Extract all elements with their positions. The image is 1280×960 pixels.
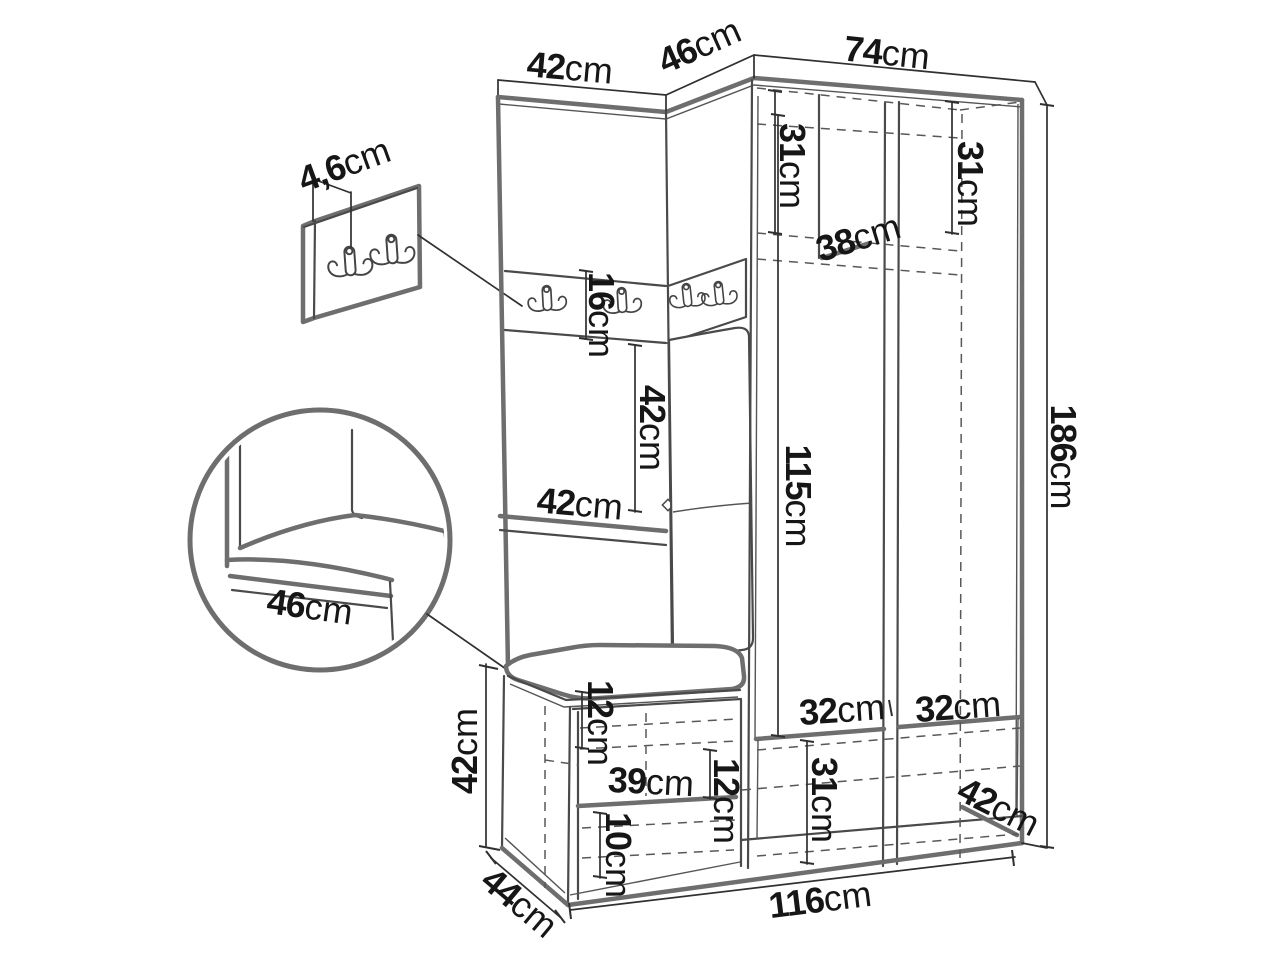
dim-line-total-height: [1022, 105, 1047, 848]
dim-label-top-left-width: 42cm: [525, 43, 614, 91]
dim-label-door-height: 115cm: [779, 444, 820, 547]
dim-label-detail-seat-depth: 46cm: [265, 580, 356, 633]
dim-label-top-right-width: 74cm: [842, 27, 932, 77]
detail-front-corner: [390, 582, 393, 642]
middle-shelf-underline: [500, 530, 666, 545]
cabinet-left-edge: [498, 97, 508, 668]
dim-label-hook-strip-height: 16cm: [582, 272, 623, 358]
dim-label-upper-shelf-depth: 38cm: [811, 205, 905, 269]
dim-label-upper-left-shelf-height: 31cm: [773, 123, 814, 209]
dim-label-middle-panel-height: 42cm: [633, 385, 674, 471]
dim-label-lower-left-compartment-width: 32cm: [798, 686, 887, 733]
dim-label-top-middle-width: 46cm: [651, 9, 746, 81]
wardrobe-left-inner-edge: [755, 96, 758, 739]
detail-leader-line: [427, 614, 506, 669]
dim-label-lower-right-compartment-width: 32cm: [914, 683, 1003, 730]
dim-label-bench-height: 42cm: [444, 708, 485, 794]
wall-hook-panel-detail: [303, 177, 522, 322]
dim-label-total-height: 186cm: [1044, 404, 1085, 509]
dim-label-lower-depth: 42cm: [951, 768, 1046, 844]
coat-hook-icon: [668, 282, 706, 309]
diagram-canvas: 42cm 46cm 74cm 4,6cm 31cm 31cm 38cm 16cm…: [0, 0, 1280, 960]
dim-label-bench-bottom-gap-height: 10cm: [599, 812, 640, 898]
dim-label-bench-side-gap-height: 12cm: [707, 758, 748, 844]
dim-label-total-width: 116cm: [766, 872, 873, 925]
backrest-outline: [669, 328, 753, 657]
dim-label-bench-shelf-width: 39cm: [607, 758, 695, 803]
upholstered-backrest: [669, 328, 753, 657]
dim-label-bench-top-gap-height: 12cm: [581, 680, 622, 766]
wardrobe-right-inner-edge: [1016, 104, 1018, 815]
dim-label-wall-panel-thickness: 4,6cm: [292, 128, 395, 199]
dim-label-middle-shelf-width: 42cm: [535, 479, 624, 527]
dim-label-lower-drawer-height: 31cm: [805, 757, 846, 843]
coat-hook-icon: [527, 285, 566, 312]
dim-label-upper-right-shelf-height: 31cm: [951, 141, 992, 227]
furniture-dimension-diagram: 42cm 46cm 74cm 4,6cm 31cm 31cm 38cm 16cm…: [0, 0, 1280, 960]
dim-label-bench-depth: 44cm: [474, 859, 566, 946]
detail-back-post: [352, 430, 362, 518]
coat-hook-icon: [700, 280, 738, 307]
plinth-top-edge: [741, 816, 1022, 840]
detail-seat-top-edge: [240, 515, 444, 548]
